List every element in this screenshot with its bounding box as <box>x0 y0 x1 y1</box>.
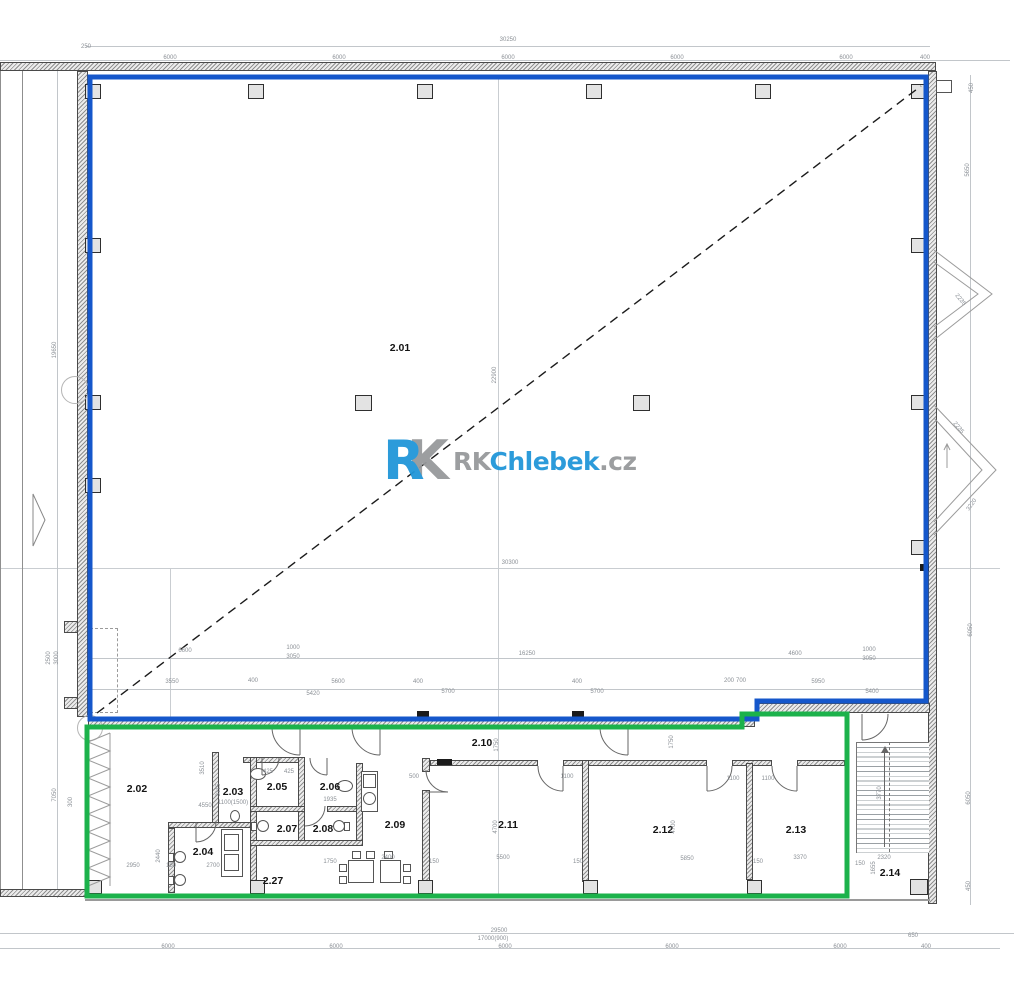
dimension-label: 5600 <box>331 679 344 685</box>
dimension-label: 5420 <box>306 691 319 697</box>
dimension-label: 400 <box>413 679 423 685</box>
dimension-label: 500 <box>409 774 419 780</box>
room-label-2-11: 2.11 <box>498 819 518 831</box>
dimension-label: 6000 <box>839 55 852 61</box>
dimension-label: 400 <box>248 678 258 684</box>
logo-text-rk: RK <box>453 447 490 476</box>
dimension-label: 1935 <box>323 797 336 803</box>
dimension-label: 1750 <box>669 735 675 748</box>
exterior-ramp-lower <box>934 405 996 535</box>
dimension-label: 6000 <box>163 55 176 61</box>
dimension-label: 6000 <box>161 944 174 950</box>
dimension-label: 700 <box>736 678 746 684</box>
room-label-2-13: 2.13 <box>786 824 806 836</box>
room-label-2-09: 2.09 <box>385 819 405 831</box>
door-arc <box>538 766 563 791</box>
dimension-label: 2440 <box>156 849 162 862</box>
room-label-2-04: 2.04 <box>193 846 213 858</box>
exterior-ramp-upper <box>934 250 992 340</box>
dimension-label: 3550 <box>165 679 178 685</box>
dimension-label: 3370 <box>793 855 806 861</box>
dimension-label: 2950 <box>126 863 139 869</box>
dimension-label: 6000 <box>332 55 345 61</box>
hall-diagonal-dashed-line <box>97 86 921 713</box>
dimension-label: 5850 <box>680 856 693 862</box>
floor-plan-canvas: R K RKChlebek.cz 2.012.022.032.042.052.0… <box>0 0 1024 991</box>
dimension-label: 4550 <box>198 803 211 809</box>
dimension-label: 7050 <box>52 788 58 801</box>
logo-mark-icon: R K <box>383 432 445 490</box>
dimension-label: 450 <box>966 881 972 891</box>
logo-wordmark: RKChlebek.cz <box>453 447 637 476</box>
dimension-label: 1100 <box>762 776 775 782</box>
door-arc <box>310 758 327 775</box>
dimension-label: 425 <box>263 769 273 775</box>
dimension-label: 650 <box>908 933 918 939</box>
dimension-label: 1100 <box>561 774 574 780</box>
door-arc <box>272 727 300 755</box>
dimension-label: 3050 <box>286 654 299 660</box>
logo-text-tld: .cz <box>599 447 636 476</box>
dimension-label: 400 <box>572 679 582 685</box>
dimension-label: 1655 <box>871 861 877 874</box>
unit-outline-blue <box>90 77 926 719</box>
room-label-2-10: 2.10 <box>472 737 492 749</box>
dimension-label: 6000 <box>670 55 683 61</box>
dimension-label: 16250 <box>519 651 536 657</box>
dimension-label: 6000 <box>833 944 846 950</box>
room-label-2-02: 2.02 <box>127 783 147 795</box>
dimension-label: 6000 <box>498 944 511 950</box>
dimension-label: 6000 <box>329 944 342 950</box>
dimension-label: 250 <box>81 44 91 50</box>
room-label-2-14: 2.14 <box>880 867 900 879</box>
door-arc <box>862 714 888 740</box>
dimension-label: 150 <box>753 859 763 865</box>
room-label-2-03: 2.03 <box>223 786 243 798</box>
dimension-label: 2400 <box>381 855 394 861</box>
dimension-label: 1100(1500) <box>218 800 248 806</box>
room-label-2-01: 2.01 <box>390 342 410 354</box>
dimension-label: 200 <box>724 678 734 684</box>
dimension-label: 6600 <box>178 648 191 654</box>
dimension-label: 400 <box>920 55 930 61</box>
dimension-label: 30300 <box>502 560 519 566</box>
dimension-label: 6000 <box>501 55 514 61</box>
door-arc <box>772 766 797 791</box>
dimension-label: 3770 <box>877 786 883 799</box>
dimension-label: 3115 <box>216 784 222 797</box>
door-arc <box>352 727 380 755</box>
room-label-2-07: 2.07 <box>277 823 297 835</box>
room-label-2-08: 2.08 <box>313 823 333 835</box>
dimension-label: 5400 <box>865 689 878 695</box>
dimension-label: 3000 <box>54 651 60 664</box>
dimension-label: 400 <box>921 944 931 950</box>
door-arc <box>426 770 448 792</box>
dimension-label: 19650 <box>52 342 58 359</box>
room-label-2-27: 2.27 <box>263 875 283 887</box>
watermark-logo: R K RKChlebek.cz <box>383 432 637 490</box>
dimension-label: 150 <box>573 859 583 865</box>
dimension-label: 1000 <box>286 645 299 651</box>
dimension-label: 5700 <box>441 689 454 695</box>
dimension-label: 30250 <box>500 37 517 43</box>
logo-text-name: Chlebek <box>490 447 600 476</box>
dimension-label: 6050 <box>966 791 972 804</box>
dimension-label: 150 <box>855 861 865 867</box>
dimension-label: 5700 <box>590 689 603 695</box>
dimension-label: 22900 <box>492 367 498 384</box>
dimension-label: 2700 <box>206 863 219 869</box>
dimension-label: 2320 <box>877 855 890 861</box>
dimension-label: 2500 <box>46 651 52 664</box>
dimension-label: 3510 <box>200 761 206 774</box>
dimension-label: 450 <box>969 83 975 93</box>
dimension-label: 4600 <box>788 651 801 657</box>
plan-overlay <box>0 0 1024 991</box>
room-label-2-05: 2.05 <box>267 781 287 793</box>
dimension-label: 1750 <box>494 738 500 751</box>
dimension-label: 1100 <box>727 776 740 782</box>
dimension-label: 6000 <box>665 944 678 950</box>
dimension-label: 425 <box>284 769 294 775</box>
logo-mark-r: R <box>383 432 425 490</box>
dimension-label: 5500 <box>496 855 509 861</box>
dimension-label: 150 <box>166 863 176 869</box>
dimension-label: 17000(900) <box>478 936 509 942</box>
room-label-2-06: 2.06 <box>320 781 340 793</box>
dimension-label: 300 <box>68 797 74 807</box>
dimension-label: 29500 <box>491 928 508 934</box>
left-direction-triangle <box>33 494 45 546</box>
door-arc <box>600 727 628 755</box>
dimension-label: 6050 <box>968 623 974 636</box>
ramp-arrow <box>944 444 950 468</box>
left-truss-zigzag <box>88 733 110 886</box>
door-arc <box>196 822 216 842</box>
dimension-label: 1750 <box>323 859 336 865</box>
dimension-label: 3050 <box>862 656 875 662</box>
dimension-label: 5950 <box>811 679 824 685</box>
dimension-label: 1000 <box>862 647 875 653</box>
dimension-label: 150 <box>429 859 439 865</box>
dimension-label: 5650 <box>965 163 971 176</box>
dimension-label: 4700 <box>671 820 677 833</box>
dimension-label: 4700 <box>493 820 499 833</box>
